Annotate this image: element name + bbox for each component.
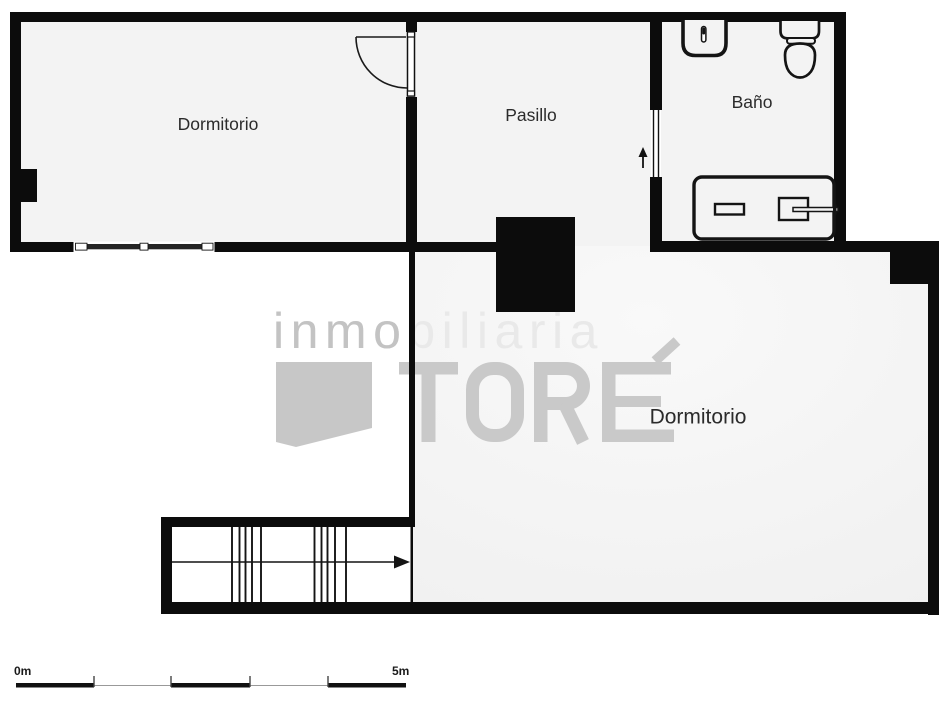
svg-text:0m: 0m (14, 664, 31, 678)
svg-text:Dormitorio: Dormitorio (650, 406, 747, 429)
svg-text:5m: 5m (392, 664, 409, 678)
svg-text:Baño: Baño (732, 92, 773, 112)
svg-text:Pasillo: Pasillo (505, 105, 557, 125)
svg-text:Dormitorio: Dormitorio (178, 114, 259, 134)
